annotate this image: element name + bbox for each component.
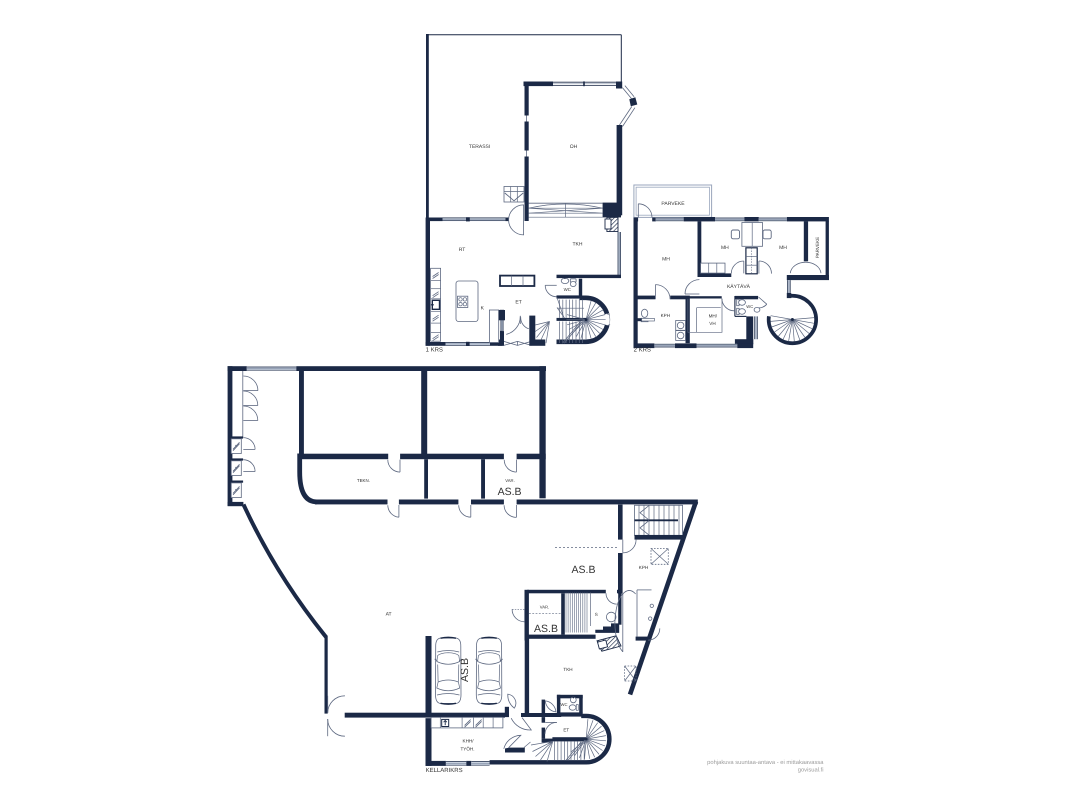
svg-text:PARVEKE: PARVEKE: [661, 201, 685, 207]
svg-text:TKH: TKH: [563, 667, 572, 672]
svg-text:TERASSI: TERASSI: [469, 144, 490, 150]
svg-text:govisual.fi: govisual.fi: [798, 767, 824, 774]
svg-text:KPH: KPH: [639, 565, 648, 570]
svg-text:TEKN.: TEKN.: [357, 478, 370, 483]
svg-text:ET: ET: [563, 728, 569, 733]
svg-text:RT: RT: [459, 247, 466, 253]
svg-text:KPH: KPH: [661, 313, 670, 318]
svg-text:MH/: MH/: [709, 314, 718, 319]
svg-text:AS.B: AS.B: [572, 564, 596, 576]
svg-text:WC: WC: [746, 304, 753, 309]
svg-text:KELLARIKRS: KELLARIKRS: [426, 767, 463, 774]
svg-text:TYÖH.: TYÖH.: [460, 746, 474, 751]
svg-text:VAR.: VAR.: [505, 478, 514, 483]
svg-text:2 KRS: 2 KRS: [634, 347, 651, 354]
svg-text:KÄYTÄVÄ: KÄYTÄVÄ: [727, 283, 751, 290]
svg-text:KHH/: KHH/: [463, 738, 475, 743]
svg-text:S: S: [595, 612, 598, 617]
svg-text:1 KRS: 1 KRS: [426, 347, 443, 354]
svg-text:TKH: TKH: [573, 241, 583, 247]
svg-text:PARVEKE: PARVEKE: [815, 237, 820, 258]
svg-text:WC: WC: [561, 702, 568, 707]
svg-text:VH: VH: [709, 321, 715, 326]
svg-text:AS.B: AS.B: [534, 623, 558, 635]
svg-text:OH: OH: [570, 144, 578, 150]
svg-text:MH: MH: [721, 245, 729, 251]
svg-text:VAR.: VAR.: [540, 605, 549, 610]
svg-text:WC: WC: [564, 287, 571, 292]
svg-text:pohjakuva suuntaa-antava - ei: pohjakuva suuntaa-antava - ei mittakaava…: [707, 759, 824, 766]
svg-text:MH: MH: [779, 245, 787, 251]
svg-text:AS.B: AS.B: [498, 486, 522, 498]
svg-text:AS.B: AS.B: [459, 658, 471, 682]
svg-text:ET: ET: [515, 300, 521, 306]
svg-text:AT: AT: [386, 612, 392, 618]
svg-text:MH: MH: [662, 257, 670, 263]
